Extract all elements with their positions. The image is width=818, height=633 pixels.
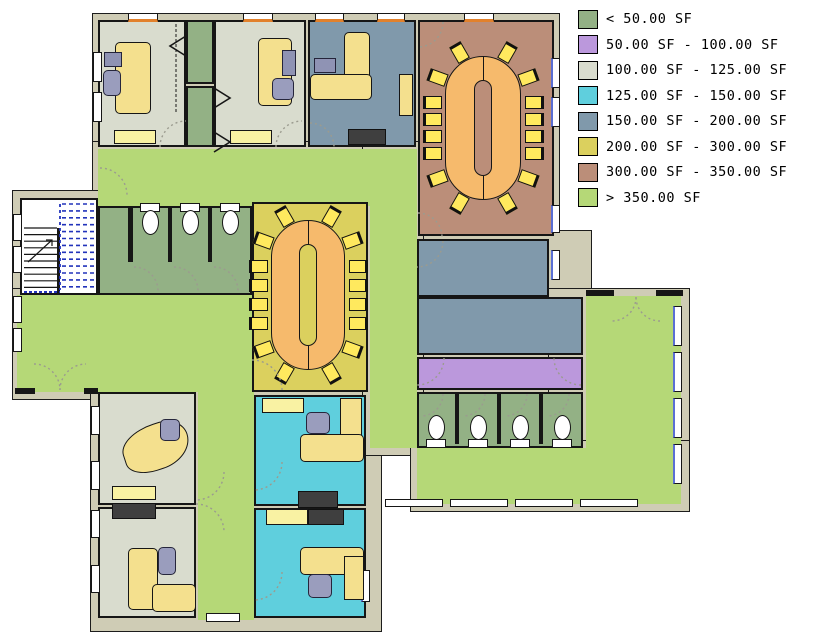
chair[interactable]: [308, 574, 332, 598]
room-closet-nw-a[interactable]: [186, 20, 214, 84]
window: [515, 499, 573, 507]
window: [93, 92, 102, 122]
window: [243, 13, 273, 22]
wall-segment: [15, 388, 35, 394]
chair[interactable]: [160, 419, 180, 441]
wall-segment: [84, 388, 98, 394]
legend-item: 300.00 SF - 350.00 SF: [578, 163, 787, 181]
legend-item: 100.00 SF - 125.00 SF: [578, 61, 787, 79]
window: [551, 205, 560, 233]
floor-plan-view: < 50.00 SF 50.00 SF - 100.00 SF 100.00 S…: [0, 0, 818, 633]
monitor[interactable]: [282, 50, 296, 76]
panel[interactable]: [344, 556, 364, 600]
legend-item: 50.00 SF - 100.00 SF: [578, 36, 787, 54]
legend-label: < 50.00 SF: [606, 11, 692, 27]
cabinet[interactable]: [114, 130, 156, 144]
legend-swatch: [578, 137, 598, 156]
cabinet[interactable]: [112, 486, 156, 500]
window: [673, 352, 682, 392]
wall-segment: [455, 394, 459, 444]
legend-label: 200.00 SF - 300.00 SF: [606, 139, 787, 155]
hall-lobby-west[interactable]: [17, 295, 252, 392]
area-legend: < 50.00 SF 50.00 SF - 100.00 SF 100.00 S…: [578, 10, 787, 207]
window: [315, 13, 344, 22]
toilet-tank: [552, 439, 572, 448]
chair[interactable]: [158, 547, 176, 575]
table-line: [483, 57, 484, 80]
desk[interactable]: [300, 434, 364, 462]
toilet[interactable]: [182, 210, 199, 235]
window: [580, 499, 638, 507]
conference-chair[interactable]: [349, 298, 368, 311]
legend-item: 200.00 SF - 300.00 SF: [578, 138, 787, 156]
legend-label: 300.00 SF - 350.00 SF: [606, 164, 787, 180]
conference-chair[interactable]: [249, 298, 268, 311]
legend-swatch: [578, 61, 598, 80]
window: [91, 406, 100, 435]
credenza[interactable]: [348, 129, 386, 145]
room-corridor-east[interactable]: [417, 357, 583, 390]
room-room-east-lower[interactable]: [417, 297, 583, 355]
table-slot: [299, 244, 317, 346]
window: [13, 214, 22, 241]
window: [91, 565, 100, 593]
cabinet[interactable]: [230, 130, 272, 144]
conference-chair[interactable]: [525, 130, 544, 143]
window: [450, 499, 508, 507]
legend-item: 125.00 SF - 150.00 SF: [578, 87, 787, 105]
window: [673, 306, 682, 346]
legend-swatch: [578, 112, 598, 131]
wall-segment: [208, 206, 212, 262]
legend-label: 125.00 SF - 150.00 SF: [606, 88, 787, 104]
window: [673, 444, 682, 484]
toilet-tank: [426, 439, 446, 448]
conference-chair[interactable]: [525, 147, 544, 160]
conference-chair[interactable]: [525, 113, 544, 126]
legend-swatch: [578, 86, 598, 105]
toilet[interactable]: [554, 415, 571, 440]
legend-item: 150.00 SF - 200.00 SF: [578, 112, 787, 130]
conference-chair[interactable]: [423, 130, 442, 143]
conference-chair[interactable]: [249, 279, 268, 292]
toilet[interactable]: [470, 415, 487, 440]
window: [673, 398, 682, 438]
toilet[interactable]: [142, 210, 159, 235]
toilet-tank: [510, 439, 530, 448]
chair[interactable]: [306, 412, 330, 434]
window: [385, 499, 443, 507]
window: [377, 13, 405, 22]
legend-swatch: [578, 188, 598, 207]
legend-label: 150.00 SF - 200.00 SF: [606, 113, 787, 129]
conference-chair[interactable]: [423, 147, 442, 160]
wall-segment: [586, 290, 614, 296]
hall-corridor-north[interactable]: [98, 149, 416, 206]
window: [13, 296, 22, 323]
conference-chair[interactable]: [423, 96, 442, 109]
table-slot: [474, 80, 492, 176]
window: [91, 461, 100, 490]
hall-open-room-east[interactable]: [586, 296, 681, 504]
wall-segment: [497, 394, 501, 444]
window: [93, 52, 102, 82]
wall-segment: [539, 394, 543, 444]
cabinet[interactable]: [266, 509, 308, 525]
window: [128, 13, 158, 22]
wall-segment: [128, 206, 133, 262]
conference-chair[interactable]: [349, 317, 368, 330]
stairwell[interactable]: [20, 198, 98, 295]
desk[interactable]: [310, 74, 372, 100]
window: [551, 58, 560, 88]
window: [206, 613, 240, 622]
table-line: [483, 176, 484, 199]
legend-label: 50.00 SF - 100.00 SF: [606, 37, 779, 53]
toilet[interactable]: [512, 415, 529, 440]
chair[interactable]: [103, 70, 121, 96]
credenza[interactable]: [112, 503, 156, 519]
window: [13, 246, 22, 273]
legend-swatch: [578, 10, 598, 29]
room-closet-nw-b[interactable]: [186, 86, 214, 147]
room-room-east-upper[interactable]: [417, 239, 549, 297]
toilet-tank: [468, 439, 488, 448]
conference-chair[interactable]: [423, 113, 442, 126]
monitor[interactable]: [314, 58, 336, 73]
legend-swatch: [578, 163, 598, 182]
credenza[interactable]: [298, 491, 338, 508]
window: [551, 97, 560, 127]
cabinet[interactable]: [262, 398, 304, 413]
conference-chair[interactable]: [525, 96, 544, 109]
conference-chair[interactable]: [249, 317, 268, 330]
table-line: [308, 221, 309, 244]
toilet[interactable]: [428, 415, 445, 440]
table-line: [308, 346, 309, 369]
legend-swatch: [578, 35, 598, 54]
conference-chair[interactable]: [249, 260, 268, 273]
panel[interactable]: [399, 74, 413, 116]
window: [13, 328, 22, 352]
legend-label: > 350.00 SF: [606, 190, 701, 206]
window: [464, 13, 494, 22]
chair[interactable]: [272, 78, 294, 100]
legend-item: < 50.00 SF: [578, 10, 787, 28]
legend-label: 100.00 SF - 125.00 SF: [606, 62, 787, 78]
toilet[interactable]: [222, 210, 239, 235]
window: [91, 510, 100, 538]
credenza[interactable]: [308, 509, 344, 525]
window: [551, 250, 560, 280]
conference-chair[interactable]: [349, 279, 368, 292]
desk[interactable]: [152, 584, 196, 612]
hall-corridor-south[interactable]: [198, 392, 254, 620]
legend-item: > 350.00 SF: [578, 189, 787, 207]
conference-chair[interactable]: [349, 260, 368, 273]
hall-corridor-mid-vertical[interactable]: [370, 149, 417, 448]
wall-segment: [168, 206, 172, 262]
monitor[interactable]: [104, 52, 122, 67]
wall-segment: [656, 290, 683, 296]
